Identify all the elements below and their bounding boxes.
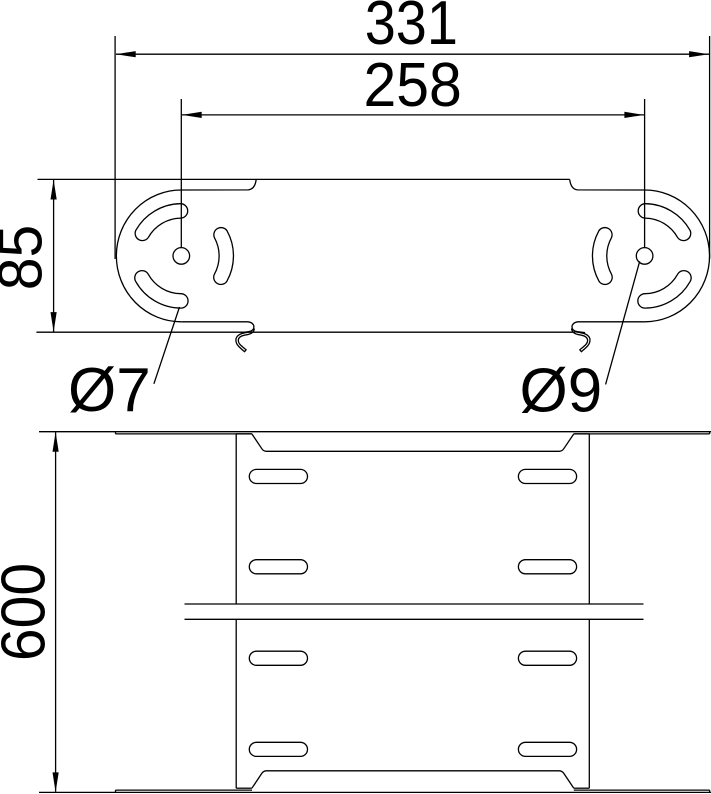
svg-text:85: 85 bbox=[0, 225, 55, 291]
svg-text:258: 258 bbox=[363, 50, 461, 120]
svg-text:600: 600 bbox=[0, 563, 58, 661]
svg-text:Ø9: Ø9 bbox=[520, 357, 603, 426]
svg-text:Ø7: Ø7 bbox=[68, 356, 151, 425]
